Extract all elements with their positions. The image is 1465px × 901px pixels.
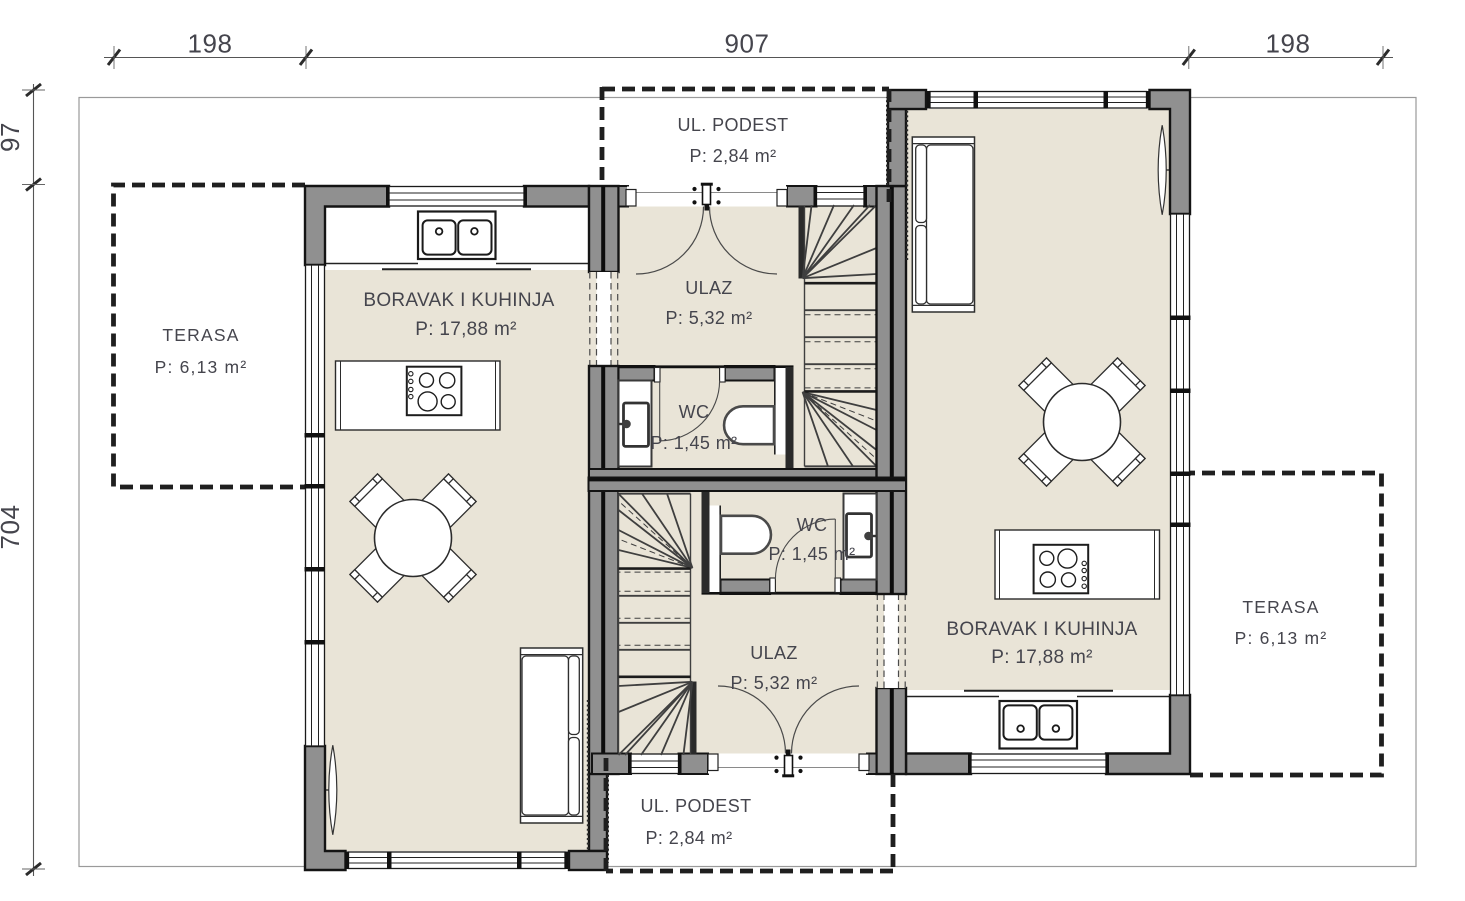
svg-text:907: 907	[725, 29, 770, 59]
svg-text:P: 2,84 m²: P: 2,84 m²	[689, 146, 776, 166]
svg-text:P: 5,32 m²: P: 5,32 m²	[730, 673, 817, 693]
svg-text:WC: WC	[797, 515, 828, 535]
svg-text:ULAZ: ULAZ	[750, 643, 798, 663]
svg-text:198: 198	[1266, 29, 1311, 59]
svg-text:WC: WC	[679, 402, 710, 422]
svg-text:UL. PODEST: UL. PODEST	[677, 115, 788, 135]
svg-text:P: 17,88 m²: P: 17,88 m²	[415, 319, 517, 340]
svg-text:P: 6,13 m²: P: 6,13 m²	[1235, 628, 1328, 648]
svg-text:P: 1,45 m²: P: 1,45 m²	[768, 544, 855, 564]
svg-text:P: 6,13 m²: P: 6,13 m²	[155, 357, 248, 377]
svg-text:BORAVAK I KUHINJA: BORAVAK I KUHINJA	[363, 290, 554, 311]
svg-text:TERASA: TERASA	[1242, 597, 1319, 617]
svg-text:P: 17,88 m²: P: 17,88 m²	[991, 647, 1093, 668]
svg-text:198: 198	[188, 29, 233, 59]
svg-text:TERASA: TERASA	[162, 325, 239, 345]
svg-text:P: 5,32 m²: P: 5,32 m²	[665, 308, 752, 328]
svg-text:P: 1,45 m²: P: 1,45 m²	[650, 433, 737, 453]
svg-text:704: 704	[0, 505, 25, 550]
svg-text:UL. PODEST: UL. PODEST	[640, 796, 751, 816]
svg-text:ULAZ: ULAZ	[685, 278, 733, 298]
svg-text:P: 2,84 m²: P: 2,84 m²	[645, 828, 732, 848]
svg-text:BORAVAK I KUHINJA: BORAVAK I KUHINJA	[946, 619, 1137, 640]
svg-text:97: 97	[0, 122, 25, 152]
